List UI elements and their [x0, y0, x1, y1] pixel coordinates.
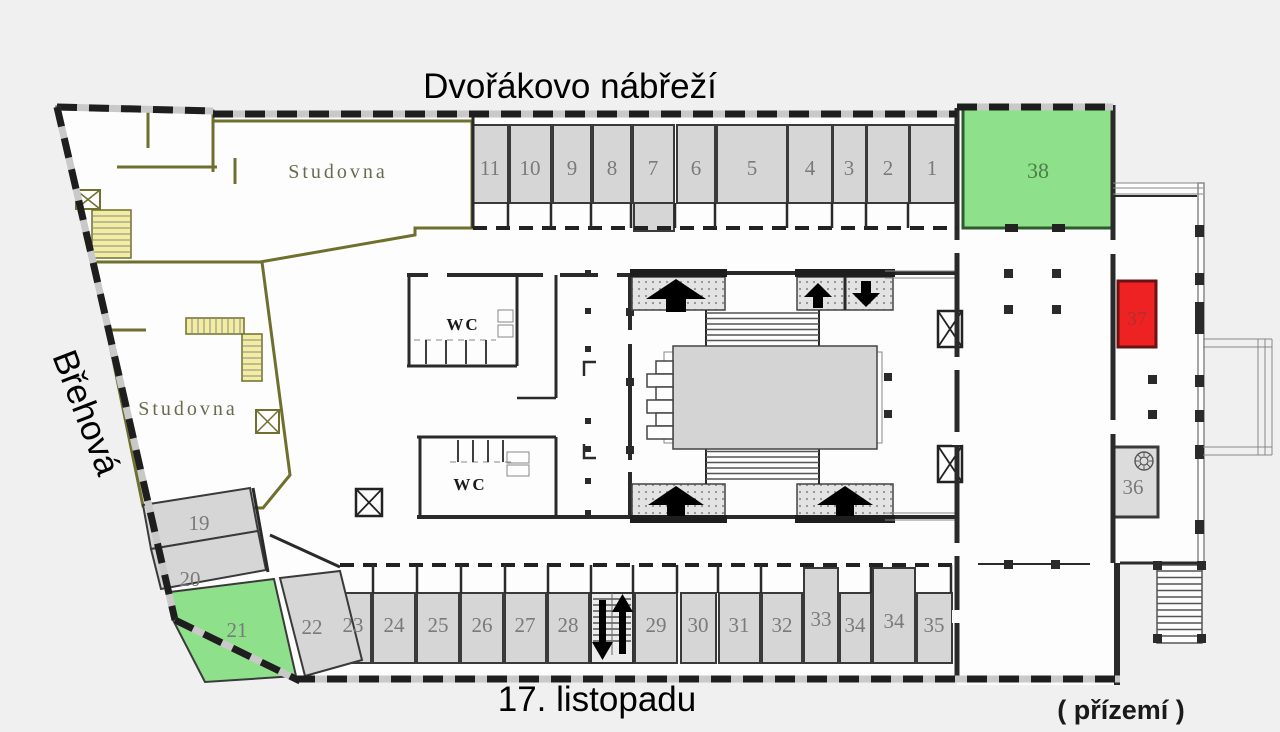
street-top: Dvořákovo nábřeží: [423, 67, 717, 106]
room-36-label: 36: [1123, 475, 1144, 499]
room-37-label: 37: [1127, 308, 1147, 330]
wc-upper-label: WC: [446, 315, 479, 334]
elevator-west-icon: [256, 410, 279, 433]
room-7-label: 7: [648, 156, 659, 180]
room-11-label: 11: [480, 156, 500, 180]
wc-lower-label: WC: [453, 475, 486, 494]
south-stairwell: [591, 593, 633, 663]
street-bottom: 17. listopadu: [498, 680, 696, 719]
room-30-label: 30: [688, 613, 709, 637]
studovna-upper-label: Studovna: [288, 161, 388, 183]
floor-plan-page: Dvořákovo nábřeží Břehová 17. listopadu …: [0, 0, 1280, 732]
room-31-label: 31: [729, 613, 750, 637]
room-10-label: 10: [520, 156, 541, 180]
room-21-label: 21: [227, 618, 248, 642]
room-8-label: 8: [607, 156, 618, 180]
room-35-label: 35: [924, 613, 945, 637]
room-4-label: 4: [805, 156, 816, 180]
room-29-label: 29: [646, 613, 667, 637]
stairs-exterior-east-icon: [1153, 561, 1206, 643]
room-34a-label: 34: [845, 613, 867, 637]
room-20-label: 20: [180, 567, 201, 591]
room-1-label: 1: [927, 156, 938, 180]
floor-label: ( přízemí ): [1057, 695, 1185, 725]
room-3-label: 3: [844, 156, 855, 180]
stairs-northwest-icon: [92, 210, 131, 258]
room-32-label: 32: [772, 613, 793, 637]
room-34b-label: 34: [884, 609, 906, 633]
room-24-label: 24: [384, 613, 406, 637]
room-38-label: 38: [1027, 158, 1049, 183]
room-28-label: 28: [558, 613, 579, 637]
room-6-label: 6: [691, 156, 702, 180]
room-9-label: 9: [567, 156, 578, 180]
room-5-label: 5: [747, 156, 758, 180]
room-27-label: 27: [515, 613, 536, 637]
room-33-label: 33: [811, 607, 832, 631]
room-22-label: 22: [302, 615, 323, 639]
room-26-label: 26: [472, 613, 493, 637]
elevator-southwest-icon: [356, 489, 382, 516]
central-hall: [673, 346, 877, 449]
room-2-label: 2: [883, 156, 894, 180]
room-23-label: 23: [343, 613, 364, 637]
room-25-label: 25: [428, 613, 449, 637]
floor-plan-map: Dvořákovo nábřeží Břehová 17. listopadu …: [0, 0, 1280, 732]
room-19-label: 19: [189, 511, 210, 535]
balcony-east: [1203, 339, 1272, 455]
studovna-lower-label: Studovna: [138, 398, 238, 420]
